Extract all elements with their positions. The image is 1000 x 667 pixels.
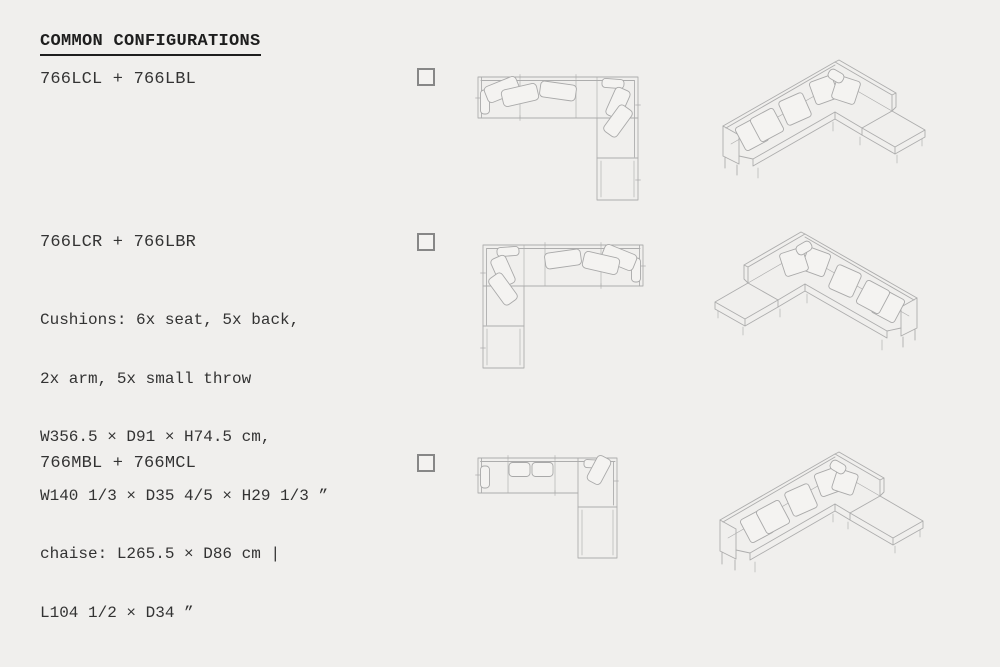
isometric-view-drawing-766lcl-766lbl [700,56,970,206]
isometric-view-drawing-766mbl-766mcl [695,438,975,598]
plan-view-drawing-766lcr-766lbr [458,228,663,378]
detail-line: chaise: L265.5 × D86 cm | [40,545,328,565]
page-title: COMMON CONFIGURATIONS [40,32,261,56]
config-label-766mbl-766mcl: 766MBL + 766MCL [40,454,196,473]
detail-line: W356.5 × D91 × H74.5 cm, [40,428,328,448]
isometric-view-drawing-766lcr-766lbr [670,228,940,378]
config-checkbox-766mbl-766mcl[interactable] [417,454,435,472]
detail-line: 2x arm, 5x small throw [40,370,328,390]
plan-view-drawing-766mbl-766mcl [458,441,663,591]
detail-line: W140 1/3 × D35 4/5 × H29 1/3 ” [40,487,328,507]
config-checkbox-766lcl-766lbl[interactable] [417,68,435,86]
plan-view-drawing-766lcl-766lbl [458,60,663,210]
detail-line: L104 1/2 × D34 ” [40,604,328,624]
catalog-page: COMMON CONFIGURATIONS 766LCL + 766LBL [0,0,1000,667]
detail-line: Cushions: 6x seat, 5x back, [40,311,328,331]
config-label-766lcr-766lbr: 766LCR + 766LBR [40,233,196,252]
config-checkbox-766lcr-766lbr[interactable] [417,233,435,251]
config-label-766lcl-766lbl: 766LCL + 766LBL [40,70,196,89]
